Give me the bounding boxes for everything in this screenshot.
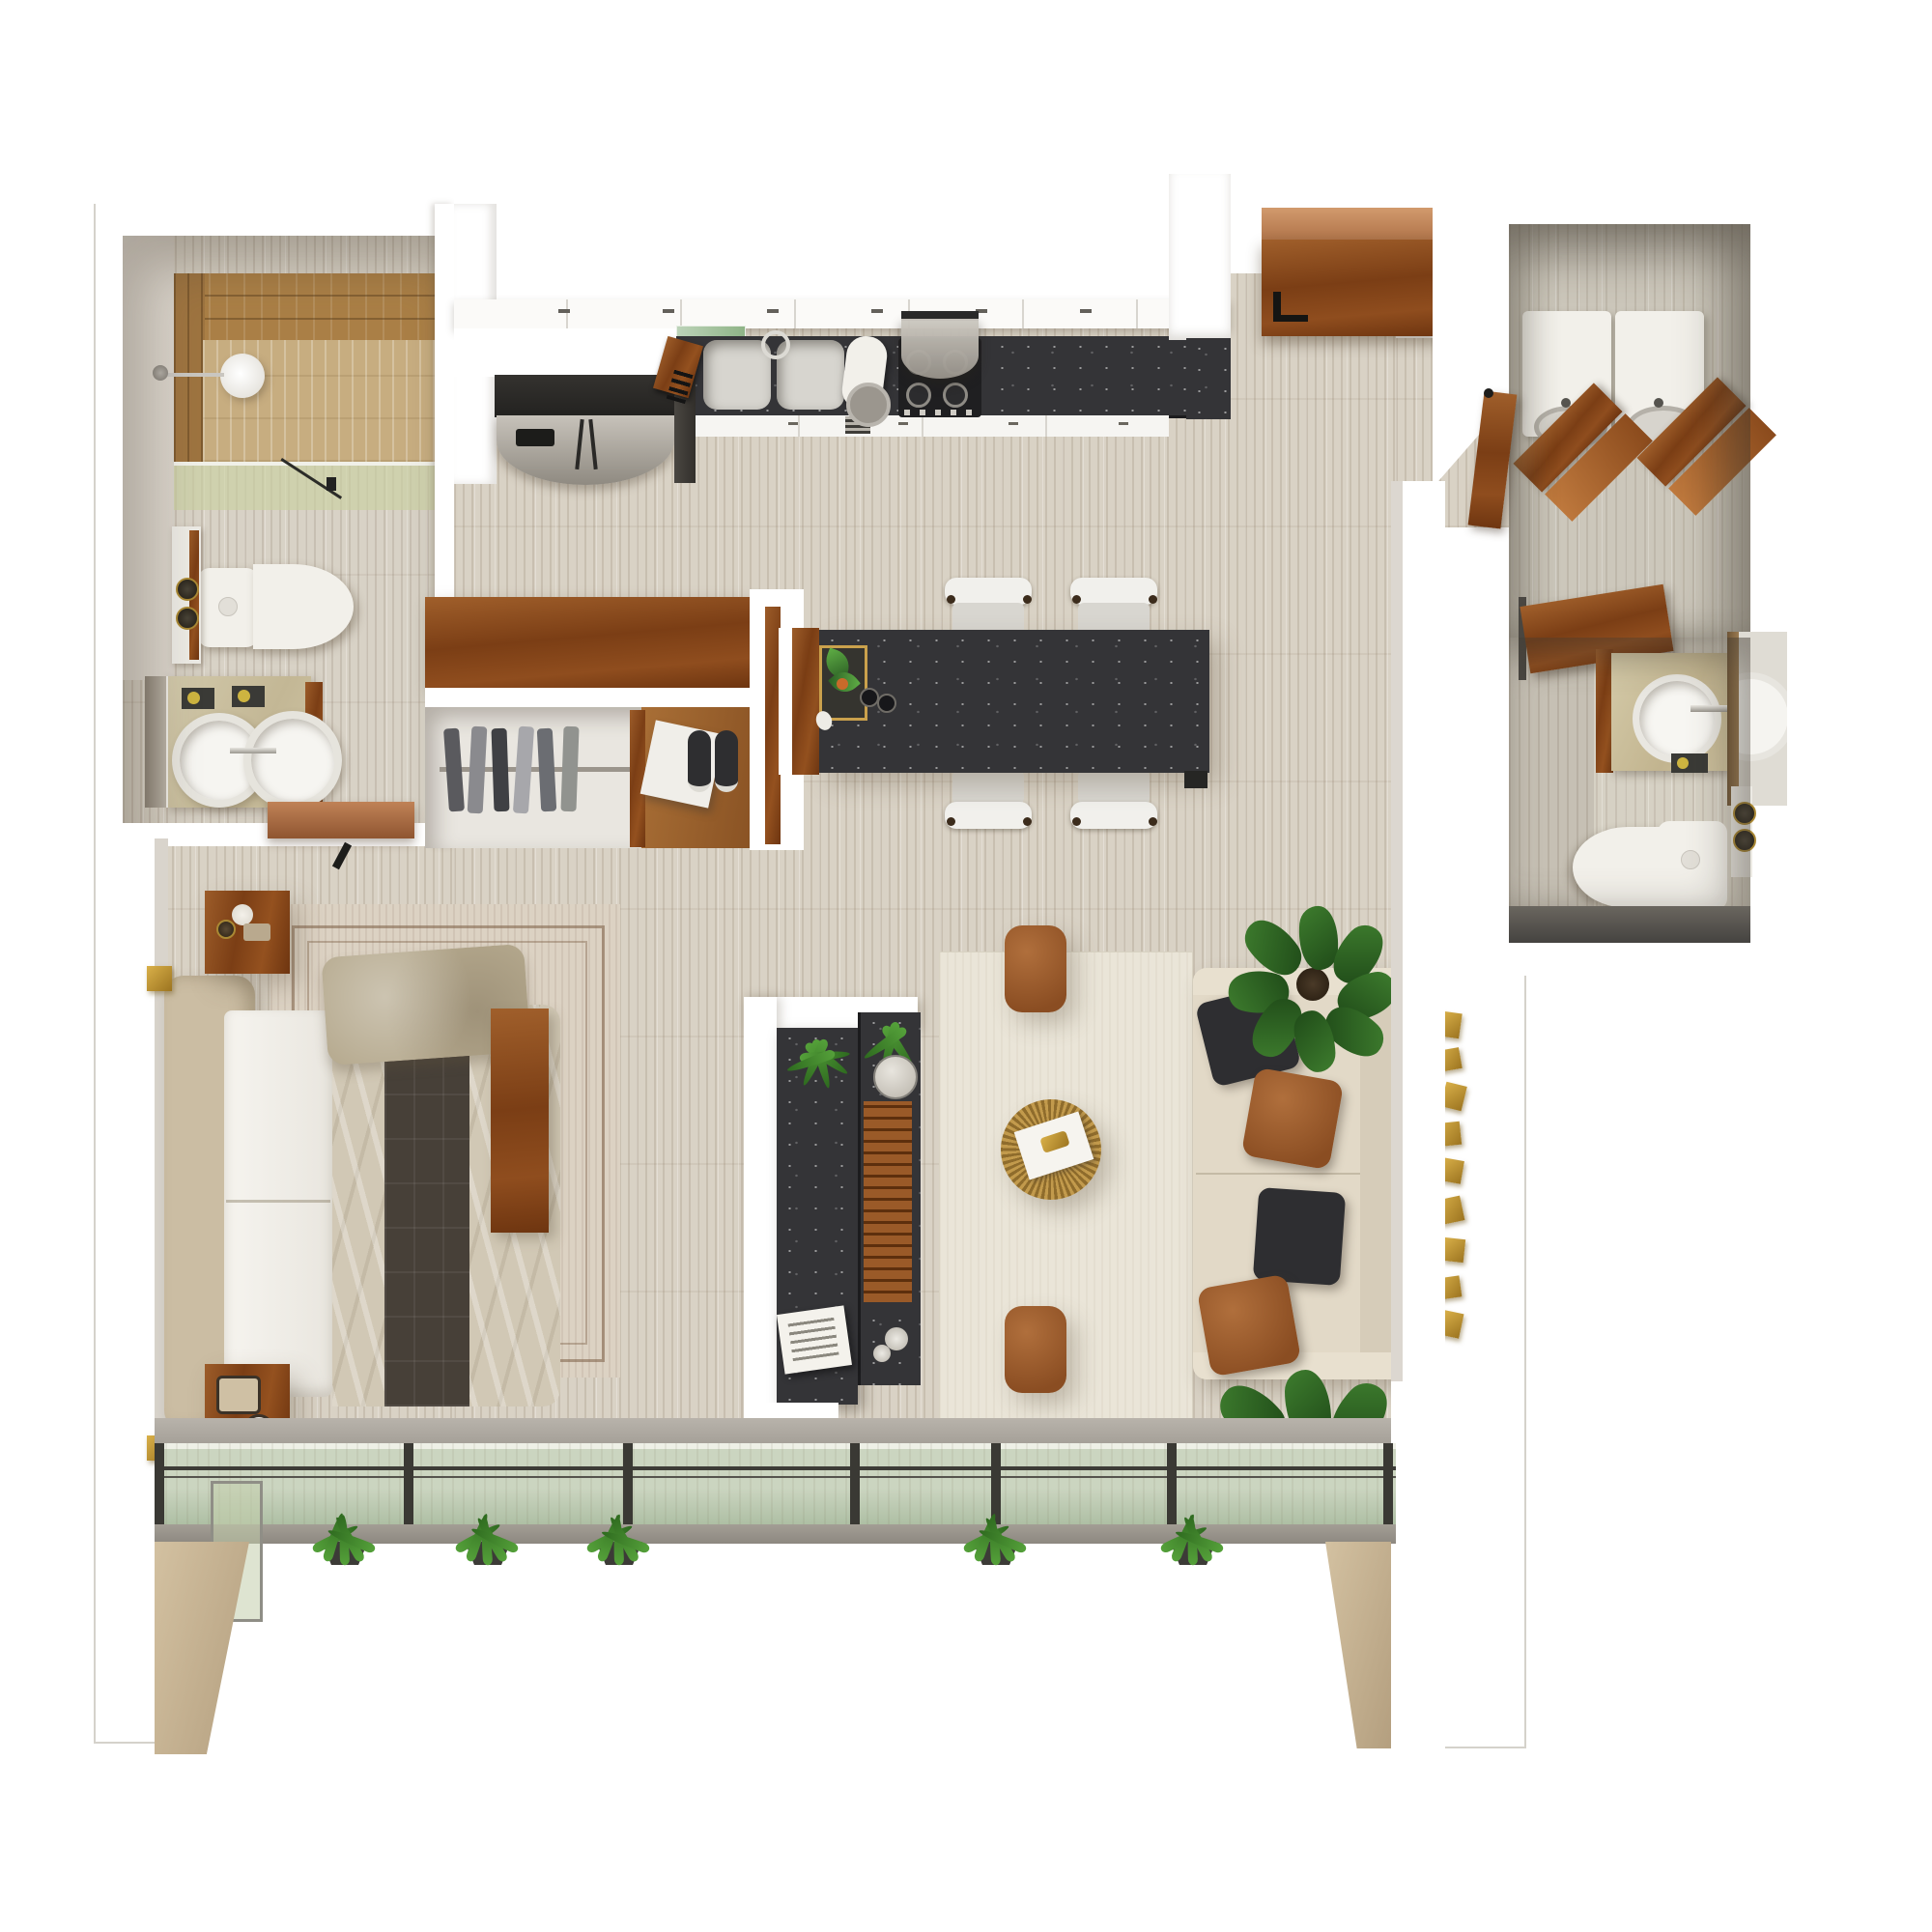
nightstand-candle [232,904,253,925]
nightstand-tray [243,923,270,941]
rain-shower-head [220,354,265,398]
dryer-latch [1654,398,1663,408]
closet-frame-strip [425,688,750,707]
stone-column-right [1325,1542,1391,1748]
marble-disc [873,1055,918,1099]
wing-dark-band [1509,906,1750,943]
island-end-cabinet [792,628,819,775]
entry-door-handle-bar [1273,315,1308,322]
vessel-sink [243,711,342,810]
chair-foot [1149,595,1157,604]
marble-disc-small [873,1345,891,1362]
entry-door-open [1262,240,1441,336]
glass-mullion [623,1443,633,1524]
reflected-sink [1739,672,1787,761]
guest-shelf-bottle [1733,802,1756,825]
refrigerator-dispenser [516,429,554,446]
dining-chair-seat [1078,771,1150,804]
kitchen-right-cabinet [1169,174,1231,340]
island-cup [877,694,896,713]
tray-candle [187,692,200,704]
guest-toilet-button [1681,850,1700,869]
cooktop-knobs [904,410,976,415]
guest-tray-candle [1677,757,1689,769]
bed-sheet-fold [226,1200,330,1203]
wardrobe-cabinet-top [425,597,750,688]
chair-foot [1023,595,1032,604]
kitchen-faucet [761,330,790,359]
chair-foot [1023,817,1032,826]
right-exterior-column [1391,1381,1445,1748]
glass-mullion [991,1443,1001,1524]
glass-rail [155,1476,1396,1478]
bathroom-wall-face [123,236,174,680]
floor-plan-render [0,0,1932,1932]
mirror-reflection [1739,632,1787,806]
sneaker [715,730,738,792]
cabinet-handle-strip [466,309,1219,313]
bed-foot-bench [491,1009,549,1233]
sofa-pillow-leather [1197,1274,1302,1378]
dining-chair-back [945,802,1032,829]
glass-mullion [404,1443,413,1524]
tray-candle [238,690,250,702]
chair-foot [1072,595,1081,604]
dining-chair-back [945,578,1032,605]
base-cabinet-row [676,415,1169,437]
shower-door-handle [327,477,336,491]
vanity-mirror [145,676,168,808]
guest-shelf-bottle [1733,829,1756,852]
kitchen-top-wall [454,174,1231,299]
partition-wall-leg [744,997,777,1451]
dining-chair-back [1070,578,1157,605]
leather-pouf [1005,925,1066,1012]
bathroom-door [268,802,414,838]
main-right-wall-face [1391,481,1403,1381]
lot-outline-bottom-right [1445,1747,1526,1748]
bed-sheet-white [224,1010,332,1397]
wing-bottom-wall [1509,943,1750,976]
living-rug [939,952,1193,1461]
chair-foot [1149,817,1157,826]
gold-art-square [1442,1237,1465,1263]
main-bottom-wall [155,1418,1396,1445]
guest-vessel-sink [1633,674,1721,763]
hanging-clothes [492,728,510,812]
sofa-pillow-leather [1241,1067,1345,1171]
base-cabinet-handles [688,422,1157,425]
sofa-pillow-black [1253,1187,1346,1286]
lot-outline-right [1524,954,1526,1748]
door-hinge [1484,388,1493,398]
glass-mullion [1383,1443,1393,1524]
bed-runner [384,1005,469,1406]
shelf-bottle [176,607,199,630]
dining-chair-back [1070,802,1157,829]
nightstand-bottle [216,920,236,939]
shelf-bottle [176,578,199,601]
chair-foot [947,817,955,826]
shower-arm [160,373,224,377]
island-cup [860,688,879,707]
sofa-seat-seam [1196,1173,1360,1175]
shower-wood-wall [174,273,435,343]
glass-mullion [1167,1443,1177,1524]
mixer-bowl [846,383,891,427]
hanging-clothes [560,726,579,812]
wood-slat-panel [864,1101,912,1302]
upper-cabinet-row [454,299,1231,328]
refrigerator-top [495,375,674,417]
burner [943,383,968,408]
magazine-text-lines [787,1317,838,1361]
lot-outline-left [94,204,96,1744]
island-foot [1184,771,1207,788]
plant-pot [1296,968,1329,1001]
glass-rail [155,1466,1396,1470]
vanity-faucet [230,748,276,753]
chair-foot [1072,817,1081,826]
burner [906,383,931,408]
sneaker [688,730,711,792]
entry-door-header [1262,208,1441,240]
shower-valve [153,365,168,381]
nightstand-dish [216,1376,261,1414]
range-hood [901,319,979,379]
toilet-flush-button [218,597,238,616]
chair-foot [947,595,955,604]
lot-outline-bottom-left [94,1742,157,1744]
glass-mullion [155,1443,164,1524]
wall-sconce [147,966,172,991]
fridge-bay-upper [454,328,678,377]
shower-glass-partition [174,462,435,510]
tray-fruit [837,678,848,690]
shower-wood-wall-side [174,273,205,463]
guest-mirror [1727,632,1739,806]
leather-pouf [1005,1306,1066,1393]
counter-return [1186,338,1231,419]
dining-chair-seat [952,771,1024,804]
stone-column-left [155,1542,249,1754]
glass-mullion [850,1443,860,1524]
sink-basin [703,340,771,410]
